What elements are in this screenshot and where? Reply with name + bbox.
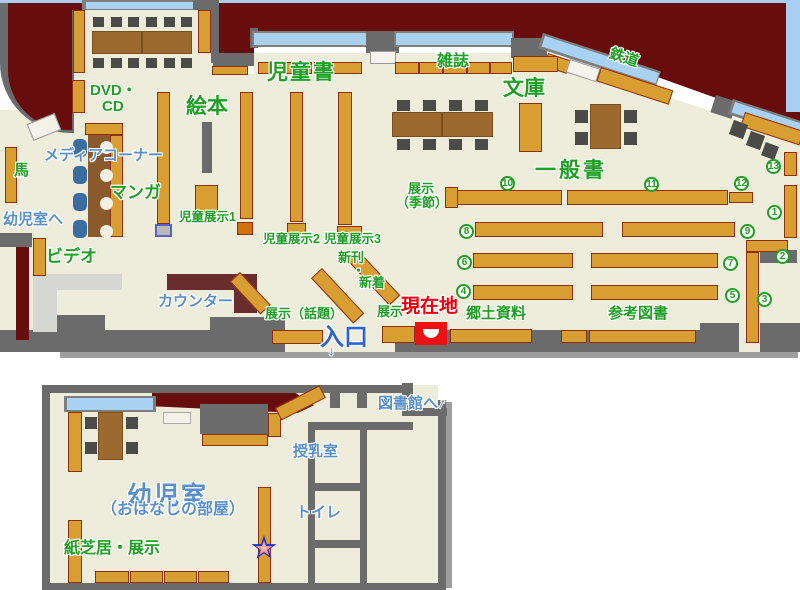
wall-lower-top [42,385,413,393]
label-ohanashi: （おはなしの部屋） [101,502,245,519]
shelf-stage-front [202,434,268,446]
wall-rooms-mid [360,430,367,583]
label-junyushitsu: 授乳室 [293,444,338,460]
wall-stall-1 [308,483,367,491]
chair [126,417,138,429]
shelf-infant-bottom [164,571,197,583]
library-floor-map: DVD・ CD 絵本 児童書 雑誌 文庫 鉄道 一般書 展示 （季節） メディア… [0,0,800,590]
shelf-infant-bottom [198,571,229,583]
chair [85,417,97,429]
window-infant [67,398,153,410]
block-stage [200,404,268,434]
wall-lower-left [42,393,50,583]
wall-stub-1 [330,393,340,408]
wall-stub-2 [357,393,367,408]
shadow-right-lower [446,402,452,588]
shelf-infant-left-1 [68,412,82,472]
wall-stall-2 [308,540,367,548]
label-kamishibai: 紙芝居・展示 [64,541,160,558]
shelf-infant-bottom [95,571,129,583]
bench-infant [163,412,191,424]
label-toshokan-e: 図書館へ [378,396,438,412]
wall-rooms-top [308,422,413,430]
label-toire: トイレ [296,505,341,521]
wall-lower-right [438,400,446,583]
table-infant [98,412,123,460]
chair [85,442,97,454]
shelf-infant-center [258,487,271,583]
chair [126,442,138,454]
infant-room-map: 図書館へ ↑ 授乳室 トイレ 幼児室 （おはなしの部屋） 紙芝居・展示 [0,0,800,590]
shelf-infant-bottom [130,571,163,583]
wall-lower-bottom [42,583,446,590]
